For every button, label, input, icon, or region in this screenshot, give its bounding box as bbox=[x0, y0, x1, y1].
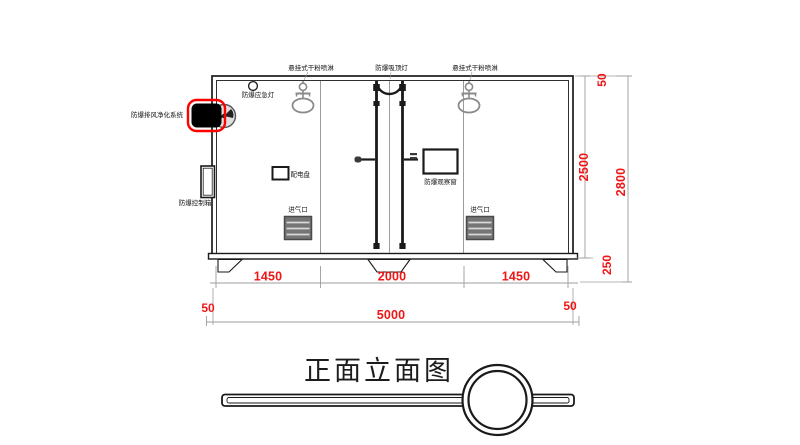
drawing-page: 悬挂式干粉喷淋 防爆吸顶灯 悬挂式干粉喷淋 防爆应急灯 防爆排风净化系统 防爆控… bbox=[0, 0, 800, 445]
exhaust-unit bbox=[188, 100, 236, 131]
label-air-inlet-right: 进气口 bbox=[470, 205, 490, 214]
door-handle-left-grip bbox=[355, 157, 362, 163]
rod-collar bbox=[399, 84, 406, 91]
rod-collar bbox=[373, 101, 379, 106]
air-inlet-left bbox=[285, 217, 312, 240]
rod-foot bbox=[399, 243, 405, 249]
dim-wall-right: 50 bbox=[563, 299, 577, 313]
dim-wall-left: 50 bbox=[201, 301, 215, 315]
label-sprinkler-right: 悬挂式干粉喷淋 bbox=[452, 63, 498, 72]
door-handle-right-grip bbox=[410, 157, 417, 159]
dim-overall-width: 5000 bbox=[377, 308, 406, 322]
label-observation-window: 防爆观察窗 bbox=[424, 177, 457, 186]
dim-overall-height: 2800 bbox=[614, 168, 628, 197]
air-inlet-right bbox=[467, 217, 494, 240]
label-air-inlet-left: 进气口 bbox=[288, 205, 308, 214]
control-box bbox=[201, 166, 215, 198]
base-frame bbox=[209, 254, 578, 260]
title-block: 正面立面图 bbox=[222, 356, 574, 435]
emergency-light bbox=[249, 82, 258, 91]
foot-left bbox=[218, 260, 242, 273]
label-emergency-light: 防爆应急灯 bbox=[242, 90, 275, 99]
power-panel-box bbox=[273, 167, 289, 180]
dim-base-height: 250 bbox=[600, 255, 614, 275]
rod-collar bbox=[399, 101, 405, 106]
foot-right bbox=[543, 260, 567, 273]
elevation-drawing: 悬挂式干粉喷淋 防爆吸顶灯 悬挂式干粉喷淋 防爆应急灯 防爆排风净化系统 防爆控… bbox=[0, 0, 800, 445]
label-ceiling-light: 防爆吸顶灯 bbox=[375, 63, 408, 72]
label-power-panel: 配电盘 bbox=[291, 170, 311, 179]
door-handle-right-grip bbox=[410, 153, 417, 155]
observation-window-box bbox=[424, 150, 458, 174]
label-control-box: 防爆控制箱 bbox=[179, 198, 212, 207]
dim-bay-2: 2000 bbox=[378, 270, 407, 284]
label-exhaust-purification: 防爆排风净化系统 bbox=[131, 110, 184, 119]
drawing-title: 正面立面图 bbox=[304, 356, 454, 386]
dim-bay-3: 1450 bbox=[502, 270, 531, 284]
dim-body-height: 2500 bbox=[577, 153, 591, 182]
dim-roof-offset: 50 bbox=[595, 73, 609, 87]
exhaust-body bbox=[192, 104, 222, 128]
title-emblem-circle-inner bbox=[469, 371, 527, 429]
emergency-light-bulb bbox=[249, 82, 258, 91]
box-outer-wall bbox=[212, 76, 573, 258]
label-sprinkler-left: 悬挂式干粉喷淋 bbox=[288, 63, 334, 72]
container-box bbox=[209, 76, 578, 272]
rod-collar bbox=[373, 84, 380, 91]
dim-bay-1: 1450 bbox=[254, 270, 283, 284]
rod-foot bbox=[373, 243, 379, 249]
